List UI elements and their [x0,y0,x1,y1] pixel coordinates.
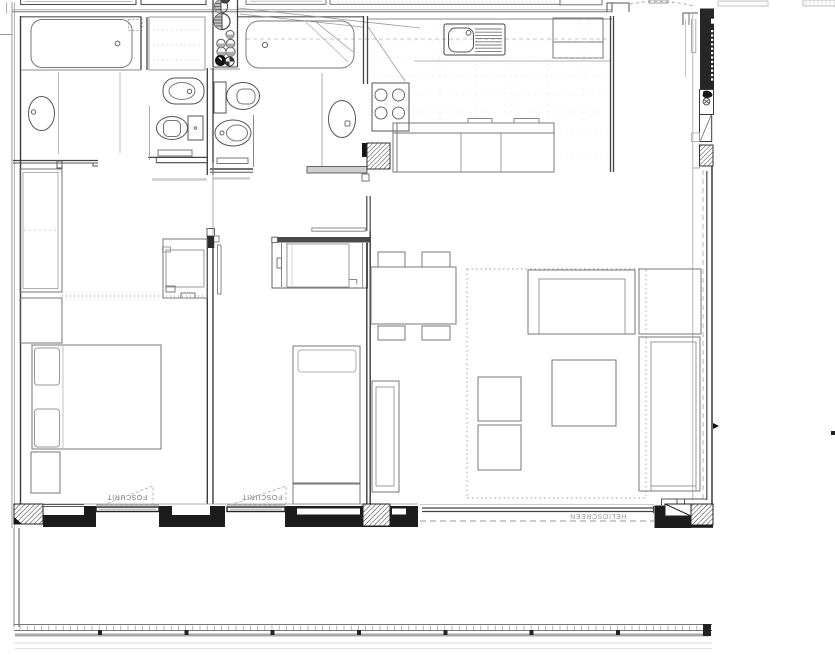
svg-text:FOSCURIT: FOSCURIT [242,493,283,500]
svg-text:HELIOSCREEN: HELIOSCREEN [570,512,627,519]
svg-text:FOSCURIT: FOSCURIT [107,493,148,500]
